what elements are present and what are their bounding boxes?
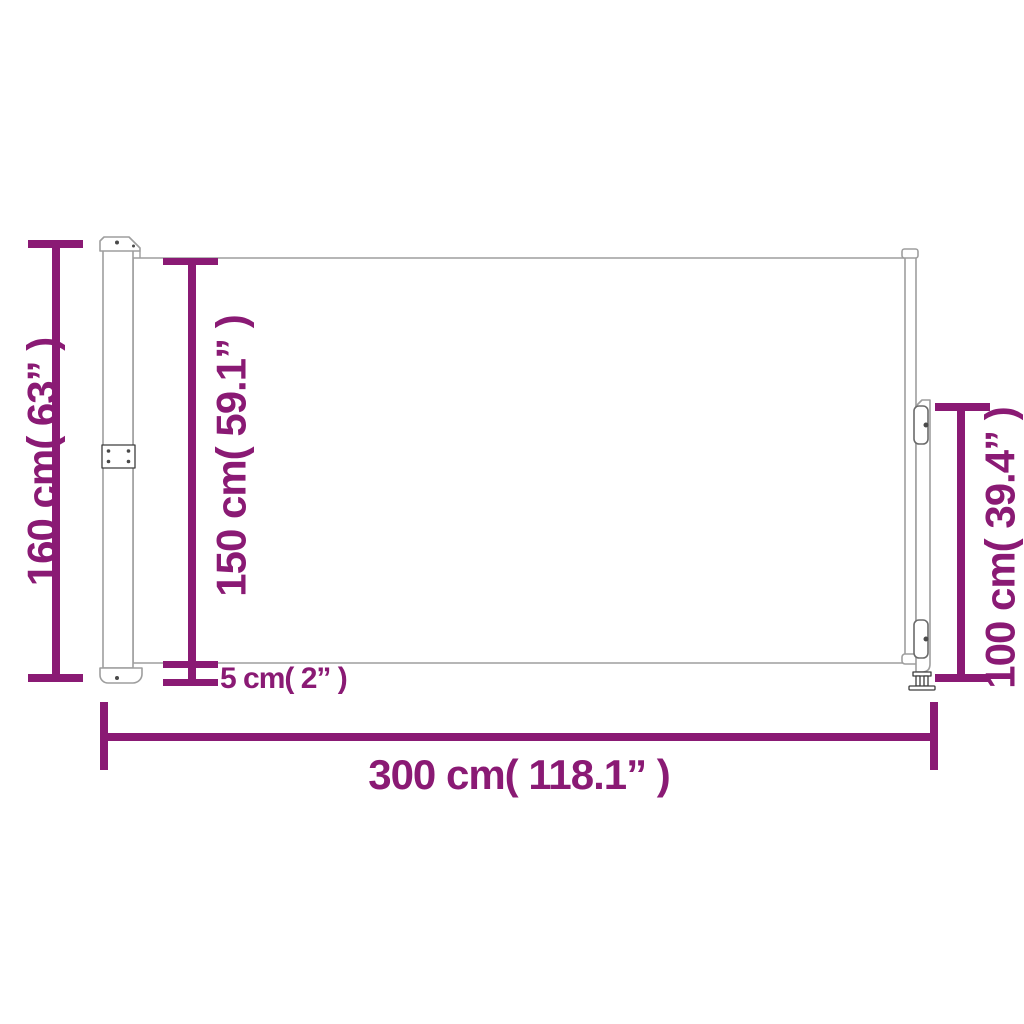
dimension-end-cap (100, 702, 108, 770)
fabric-leading-edge-profile (905, 250, 916, 663)
post-ground-foot (909, 672, 935, 690)
foot-leg (916, 676, 920, 686)
post-height-label: 100 cm( 39.4” ) (977, 407, 1024, 689)
cap-screw-icon (115, 241, 119, 245)
handle-knob-icon (924, 637, 929, 642)
plate-screw-icon (127, 449, 131, 453)
plate-screw-icon (107, 460, 111, 464)
ground-clearance-label: 5 cm( 2” ) (220, 662, 347, 695)
foot-leg (924, 676, 928, 686)
cap-screw-icon (132, 245, 135, 248)
right-pullout-post (902, 249, 935, 690)
total-height-dimension: 160 cm( 63” ) (19, 240, 84, 682)
mounting-plate (102, 445, 135, 468)
dimension-end-cap (28, 240, 83, 248)
dimension-end-cap (930, 702, 938, 770)
leading-edge-top-cap (902, 249, 918, 258)
awning-dimension-diagram: 160 cm( 63” ) 150 cm( 59.1” ) 5 cm( 2” )… (0, 0, 1024, 1024)
dimension-line (188, 258, 196, 686)
dimension-end-cap (28, 674, 83, 682)
dimension-line (957, 403, 965, 682)
total-height-label: 160 cm( 63” ) (19, 338, 66, 586)
left-pole-foot (100, 668, 142, 683)
fabric-height-label: 150 cm( 59.1” ) (208, 315, 255, 597)
handle-knob-icon (924, 423, 929, 428)
plate-screw-icon (127, 460, 131, 464)
dimension-end-cap (163, 258, 218, 265)
foot-flange (913, 672, 931, 676)
foot-screw-icon (115, 676, 119, 680)
plate-screw-icon (107, 449, 111, 453)
total-width-dimension: 300 cm( 118.1” ) (100, 702, 938, 798)
dimension-end-cap (163, 679, 218, 686)
total-width-label: 300 cm( 118.1” ) (368, 751, 670, 798)
dimension-end-cap (163, 661, 218, 668)
foot-base-plate (909, 686, 935, 690)
post-height-dimension: 100 cm( 39.4” ) (935, 403, 1024, 689)
dimension-line (100, 733, 938, 741)
dimension-diagram-canvas: 160 cm( 63” ) 150 cm( 59.1” ) 5 cm( 2” )… (0, 0, 1024, 1024)
left-pole-top-cap (100, 237, 140, 251)
